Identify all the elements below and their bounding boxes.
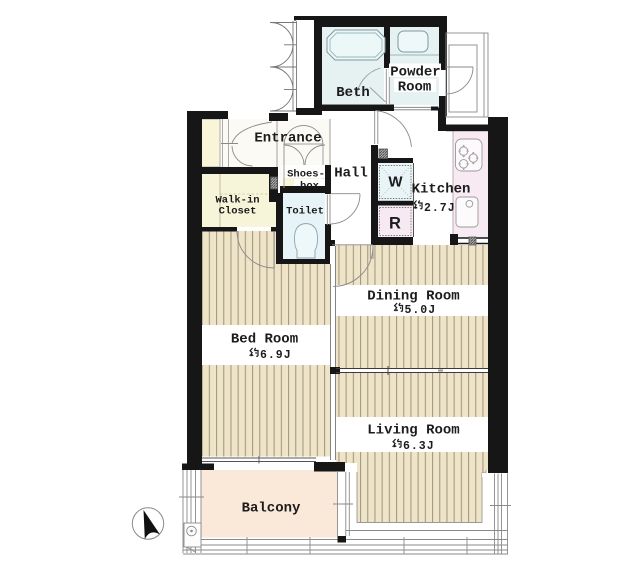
svg-text:Closet: Closet: [219, 206, 257, 218]
svg-text:W: W: [388, 174, 403, 191]
svg-text:Room: Room: [398, 80, 432, 96]
svg-text:Living Room: Living Room: [367, 423, 459, 439]
svg-text:Shoes-: Shoes-: [287, 169, 325, 181]
svg-text:R: R: [389, 215, 401, 233]
svg-text:6.9J: 6.9J: [260, 349, 292, 362]
svg-text:Kitchen: Kitchen: [412, 182, 471, 198]
svg-text:Beth: Beth: [336, 85, 370, 101]
svg-text:Toilet: Toilet: [286, 206, 324, 218]
svg-text:Entrance: Entrance: [254, 131, 321, 147]
svg-text:Hall: Hall: [334, 166, 368, 182]
svg-text:5.0J: 5.0J: [405, 304, 437, 317]
svg-text:Bed Room: Bed Room: [231, 332, 298, 348]
svg-text:Balcony: Balcony: [242, 501, 301, 517]
svg-text:Powder: Powder: [390, 65, 440, 81]
svg-text:6.3J: 6.3J: [403, 440, 435, 453]
svg-text:Dining Room: Dining Room: [367, 289, 459, 305]
svg-text:2.7J: 2.7J: [424, 202, 456, 215]
svg-text:box: box: [300, 181, 320, 193]
